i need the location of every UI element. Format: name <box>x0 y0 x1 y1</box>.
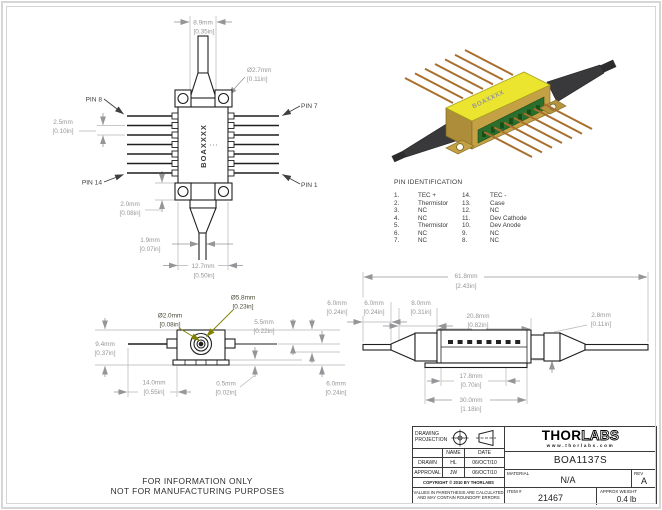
rev-value: A <box>632 476 656 486</box>
drawing-sheet: BOAXXXX PIN 8 PIN 14 PIN 7 PIN 1 8.9mm [… <box>0 0 662 510</box>
pin-function: NC <box>418 237 462 245</box>
pin-number: 1. <box>394 192 418 200</box>
weight-label: APPROX WEIGHT <box>600 489 637 494</box>
dim-label: 8.9mm <box>193 20 213 27</box>
pin-number: 7. <box>394 237 418 245</box>
dim-label: [0.08in] <box>120 210 141 217</box>
thorlabs-url: www.thorlabs.com <box>505 443 656 448</box>
title-block-right: THORLABS www.thorlabs.com BOA1137S MATER… <box>505 427 656 503</box>
pin-identification-title: PIN IDENTIFICATION <box>394 179 556 186</box>
side-view-drawing: 61.8mm [2.43in] 6.0mm [0.24in] 8.0mm [0.… <box>347 271 648 414</box>
pin-function: Dev Cathode <box>490 215 556 223</box>
weight-cell: APPROX WEIGHT 0.4 lb <box>596 488 656 505</box>
drawn-label: DRAWN <box>413 458 443 467</box>
dim-label: [0.08in] <box>160 322 181 329</box>
pin-function: Dev Anode <box>490 222 556 230</box>
dim-label: 20.8mm <box>466 313 489 320</box>
dim-label: [0.22in] <box>254 328 275 335</box>
end-view-drawing: Ø5.8mm [0.23in] Ø2.0mm [0.08in] 5.5mm [0… <box>95 295 348 398</box>
logo-text-labs: LABS <box>581 428 619 443</box>
dim-label: [0.11in] <box>591 321 612 328</box>
dim-label: Ø2.0mm <box>158 313 183 320</box>
dim-label: 6.0mm <box>326 381 346 388</box>
dim-label: 8.0mm <box>411 300 431 307</box>
pin-function: Case <box>490 200 556 208</box>
pin7-label: PIN 7 <box>301 103 318 110</box>
drawn-name: HL <box>443 458 465 467</box>
material-cell: MATERIAL N/A REV A <box>505 470 656 488</box>
title-block: DRAWING PROJECTION NAME DATE DRAWN <box>412 426 657 504</box>
projection-cell: DRAWING PROJECTION <box>413 427 504 449</box>
dim-label: [0.07in] <box>140 246 161 253</box>
dim-label: 14.0mm <box>142 380 165 387</box>
rev-cell: REV A <box>631 470 656 487</box>
dim-label: [0.50in] <box>194 273 215 280</box>
part-number: BOA1137S <box>505 452 656 470</box>
item-value: 21467 <box>505 493 596 503</box>
dim-label: [0.24in] <box>326 390 347 397</box>
title-block-left: DRAWING PROJECTION NAME DATE DRAWN <box>413 427 505 503</box>
dim-label: Ø2.7mm <box>247 67 272 74</box>
pin-function: Thermistor <box>418 222 462 230</box>
dim-label: 9.4mm <box>95 341 115 348</box>
product-render: BOAXXXX <box>392 50 617 162</box>
pin1-label: PIN 1 <box>301 182 318 189</box>
pin-number: 11. <box>462 215 490 223</box>
dim-label: 61.8mm <box>454 273 477 280</box>
pin-number: 12. <box>462 207 490 215</box>
dim-label: [0.37in] <box>95 350 116 357</box>
material-value: N/A <box>505 475 631 485</box>
dim-label: [1.18in] <box>461 406 482 413</box>
top-view-drawing: BOAXXXX PIN 8 PIN 14 PIN 7 PIN 1 8.9mm [… <box>53 16 318 280</box>
pin-function: NC <box>418 207 462 215</box>
note-line-1: FOR INFORMATION ONLY <box>55 476 340 486</box>
dim-label: 1.9mm <box>140 237 160 244</box>
dim-label: [0.24in] <box>327 309 348 316</box>
dim-label: 17.8mm <box>459 373 482 380</box>
pin-identification-table: PIN IDENTIFICATION 1.TEC +14.TEC - 2.The… <box>394 179 556 245</box>
dim-label: 6.0mm <box>364 300 384 307</box>
dim-label: [0.24in] <box>364 309 385 316</box>
note-line-2: NOT FOR MANUFACTURING PURPOSES <box>55 486 340 496</box>
projection-label-line2: PROJECTION <box>415 438 449 444</box>
pin-number: 6. <box>394 230 418 238</box>
pin-number: 2. <box>394 200 418 208</box>
item-cell: ITEM # 21467 APPROX WEIGHT 0.4 lb <box>505 488 656 505</box>
pin-function: NC <box>418 215 462 223</box>
pin-number: 8. <box>462 237 490 245</box>
drawn-date: 06/OCT/10 <box>465 458 504 467</box>
pin-number: 14. <box>462 192 490 200</box>
col-header-name: NAME <box>443 449 465 457</box>
pin-function: Thermistor <box>418 200 462 208</box>
dim-label: [2.43in] <box>456 283 477 290</box>
pin-function: NC <box>490 207 556 215</box>
third-angle-projection-icon <box>449 428 497 448</box>
approval-label: APPROVAL <box>413 468 443 477</box>
dim-label: [0.31in] <box>411 309 432 316</box>
dim-label: 2.0mm <box>120 201 140 208</box>
weight-value: 0.4 lb <box>597 495 656 504</box>
logo-text-thor: THOR <box>542 428 581 443</box>
dim-label: 0.5mm <box>216 381 236 388</box>
dim-label: 12.7mm <box>191 263 214 270</box>
pin-function: TEC + <box>418 192 462 200</box>
copyright-line: COPYRIGHT © 2010 BY THORLABS <box>413 478 504 488</box>
dim-label: [0.11in] <box>247 76 268 83</box>
dim-label: 2.8mm <box>591 312 611 319</box>
pin-number: 13. <box>462 200 490 208</box>
pin14-label: PIN 14 <box>82 180 102 187</box>
dim-label: [0.02in] <box>216 390 237 397</box>
pin-number: 9. <box>462 230 490 238</box>
pin-function: TEC - <box>490 192 556 200</box>
tolerance-note-line2: AND MAY CONTAIN ROUNDOFF ERRORS <box>413 495 504 500</box>
dim-label: 5.5mm <box>254 319 274 326</box>
information-only-note: FOR INFORMATION ONLY NOT FOR MANUFACTURI… <box>55 476 340 496</box>
dim-label: [0.70in] <box>461 382 482 389</box>
dim-label: [0.10in] <box>53 128 74 135</box>
dim-label: 30.0mm <box>459 397 482 404</box>
approval-date: 06/OCT/10 <box>465 468 504 477</box>
pin8-label: PIN 8 <box>86 97 103 104</box>
pin-function: NC <box>490 230 556 238</box>
dim-label: 2.5mm <box>53 119 73 126</box>
thorlabs-logo: THORLABS www.thorlabs.com <box>505 427 656 452</box>
dim-label: [0.23in] <box>233 304 254 311</box>
col-header-date: DATE <box>465 449 504 457</box>
dim-label: 6.0mm <box>327 300 347 307</box>
pin-function: NC <box>418 230 462 238</box>
pin-number: 3. <box>394 207 418 215</box>
dim-label: Ø5.8mm <box>231 295 256 302</box>
pin-number: 5. <box>394 222 418 230</box>
dim-label: [0.82in] <box>468 322 489 329</box>
pin-function: NC <box>490 237 556 245</box>
approval-name: JW <box>443 468 465 477</box>
pin-number: 10. <box>462 222 490 230</box>
pin-number: 4. <box>394 215 418 223</box>
dim-label: [0.35in] <box>194 29 215 36</box>
top-view-part-label: BOAXXXX <box>199 124 208 168</box>
dim-label: [0.55in] <box>144 389 165 396</box>
